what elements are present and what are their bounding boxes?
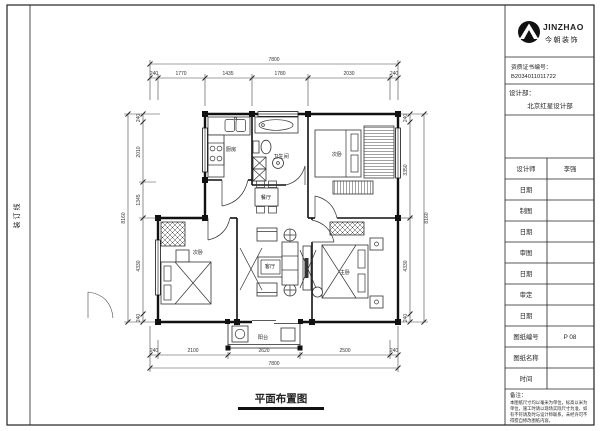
dim-top-seg: 2030	[343, 71, 354, 77]
armchair	[257, 283, 277, 296]
dim-bottom-seg: 240	[150, 348, 159, 354]
row-label: 图纸名称	[513, 353, 539, 362]
room-label-bedroom2: 次卧	[332, 150, 342, 158]
certificate-number: B2034011011722	[511, 74, 556, 80]
certificate-label: 资质证书编号：	[511, 63, 552, 71]
room-label-kitchen: 厨房	[226, 145, 236, 153]
dim-left-seg: 1345	[136, 194, 142, 205]
stool	[313, 287, 323, 297]
notes-line: 有不符请及时与设计师联系，未经许可不	[510, 411, 588, 418]
row-label: 日期	[520, 270, 533, 278]
dim-left-seg: 240	[136, 314, 142, 323]
row-label: 图纸编号	[513, 332, 538, 341]
armchair	[257, 228, 277, 241]
kitchen-window	[203, 128, 208, 172]
bed	[161, 262, 211, 304]
dim-right-seg: 3350	[403, 164, 409, 175]
dim-bottom-seg: 240	[390, 348, 399, 354]
row-date-2: 日期	[520, 228, 533, 236]
dim-right-seg: 240	[403, 114, 409, 123]
dim-bottom-seg: 2620	[258, 348, 269, 354]
dim-bottom-seg: 2500	[339, 348, 350, 354]
room-label-bathroom: 卫生间	[273, 152, 289, 160]
wardrobe	[161, 222, 185, 246]
department-value: 北京红星设计部	[527, 101, 573, 110]
room-label-bedroom3: 次卧	[193, 248, 203, 256]
row-drafter: 制图	[520, 206, 533, 215]
row-time: 时间	[520, 374, 533, 383]
dim-right-seg: 240	[403, 314, 409, 323]
brand-name: JINZHAO	[543, 22, 584, 32]
wardrobe	[364, 126, 394, 178]
drawing-sheet: 装订线	[0, 0, 600, 431]
row-label: 日期	[520, 228, 533, 236]
row-value: P 08	[564, 334, 577, 341]
dim-left-seg: 240	[136, 114, 142, 123]
row-approver: 审定	[520, 290, 533, 299]
row-date-3: 日期	[520, 270, 533, 278]
dim-right-seg: 4330	[403, 260, 409, 271]
dim-left-overall: 8160	[121, 212, 127, 223]
row-label: 日期	[520, 312, 533, 320]
row-value: 李强	[564, 164, 577, 173]
row-label: 审定	[520, 290, 533, 299]
desk	[176, 250, 189, 262]
dim-top-seg: 1770	[175, 71, 186, 77]
nightstand	[370, 238, 383, 250]
room-label-living: 客厅	[265, 262, 275, 270]
bedroom3-window	[156, 240, 161, 295]
sheet-frame: 装订线	[7, 5, 594, 425]
room-label-balcony: 阳台	[258, 333, 268, 341]
department-label: 设计部：	[509, 88, 535, 97]
row-label: 日期	[520, 186, 533, 194]
dresser	[333, 181, 373, 194]
bathroom-window	[258, 112, 298, 117]
sofa	[282, 242, 298, 285]
dim-top-overall: 7800	[268, 57, 279, 63]
dim-left-seg: 2010	[136, 146, 142, 157]
row-label: 设计师	[517, 164, 536, 173]
row-label: 时间	[520, 374, 533, 383]
notes-line: 单位，施工时请以现场实际尺寸为准，如	[510, 405, 587, 412]
drawing-title-text: 平面布置图	[255, 392, 308, 405]
room-label-dining: 餐厅	[261, 193, 271, 201]
row-date-4: 日期	[520, 312, 533, 320]
brand-name-cn: 今朝装饰	[545, 35, 579, 44]
sheet-border	[7, 5, 594, 425]
notes-line: 本图纸尺寸均以毫米为单位，标高以米为	[510, 399, 587, 406]
row-label: 制图	[520, 206, 533, 215]
notes-label: 备注：	[510, 391, 527, 399]
bedroom2-window	[396, 128, 401, 178]
washing-machine	[232, 326, 248, 342]
row-date-1: 日期	[520, 186, 533, 194]
binding-line-label: 装订线	[12, 202, 21, 229]
dim-top-seg: 240	[150, 71, 159, 77]
dim-left-seg: 4330	[136, 260, 142, 271]
toilet	[261, 140, 271, 154]
wardrobe	[330, 222, 364, 235]
row-reviewer: 审图	[520, 248, 533, 257]
dim-right-overall: 8160	[424, 212, 430, 223]
dim-bottom-seg: 2100	[187, 348, 198, 354]
cabinet	[281, 328, 295, 341]
kitchen-counter-left	[208, 135, 224, 177]
toilet-tank	[253, 141, 259, 153]
dim-top-seg: 240	[390, 71, 399, 77]
dim-top-seg: 1780	[274, 71, 285, 77]
dim-bottom-overall: 7800	[268, 361, 279, 367]
row-drawing-name: 图纸名称	[513, 353, 539, 362]
dim-top-seg: 1435	[222, 71, 233, 77]
row-label: 审图	[520, 248, 533, 257]
room-label-master: 主卧	[340, 268, 350, 276]
nightstand	[370, 296, 383, 308]
notes-line: 得擅自修改图纸内容。	[510, 417, 553, 424]
